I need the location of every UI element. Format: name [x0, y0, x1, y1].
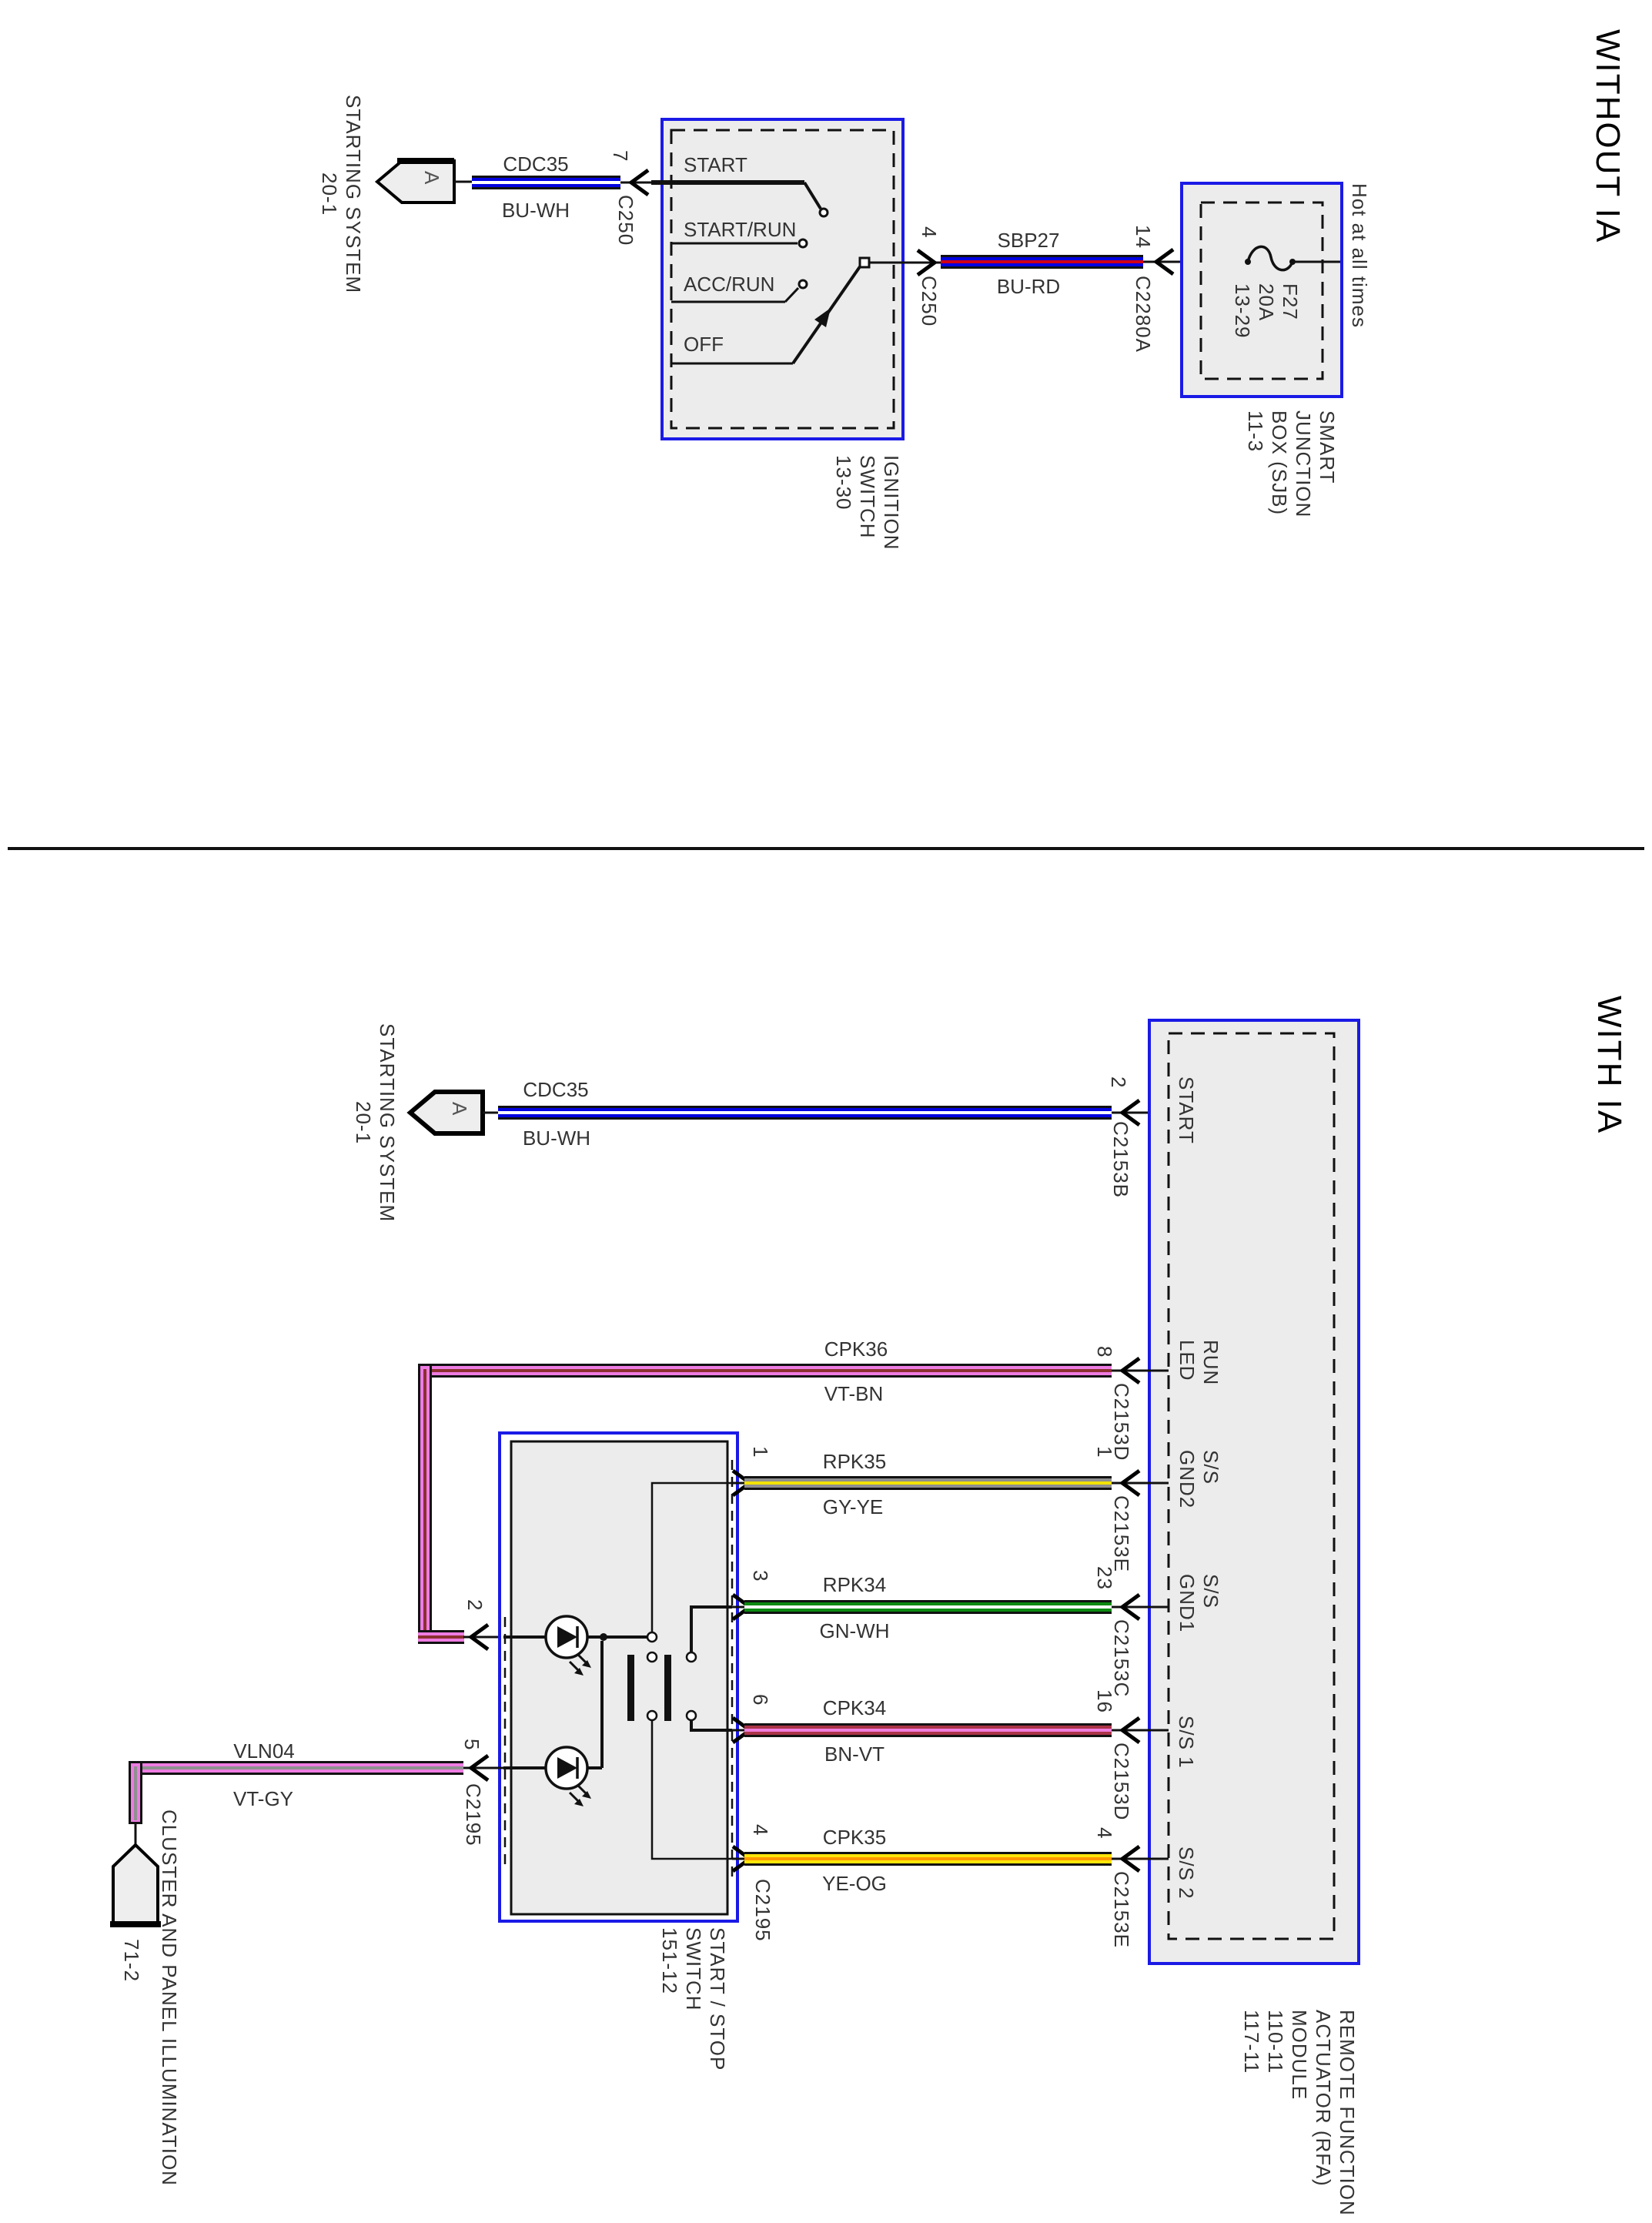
ignition-position-off: OFF [684, 333, 724, 356]
connector-c250-a: C250 [614, 195, 637, 246]
cluster-ref-number: 71-2 [119, 1939, 143, 1982]
module-pin-ss-gnd1: S/S GND1 [1175, 1574, 1222, 1632]
pin-16: 16 [1092, 1689, 1116, 1713]
wire-code-sbp27: SBP27 [998, 229, 1060, 252]
wire-code-rpk34: RPK34 [823, 1573, 886, 1596]
connector-c2153e-a: C2153E [1109, 1495, 1133, 1572]
ignition-position-start-run: START/RUN [684, 218, 796, 241]
wire-code-vln04: VLN04 [233, 1739, 295, 1763]
wire-color-cdc35-top: BU-WH [502, 199, 570, 222]
module-pin-start: START [1174, 1076, 1198, 1144]
pin-23: 23 [1092, 1566, 1116, 1590]
switch-pin-3: 3 [748, 1570, 772, 1582]
ignition-position-start: START [684, 153, 747, 176]
fuse-f27-label: F27 20A 13-29 [1230, 283, 1302, 339]
switch-pin-1: 1 [748, 1446, 772, 1458]
connector-c250-b: C250 [917, 276, 941, 326]
ignition-switch-label: IGNITION SWITCH 13-30 [831, 455, 903, 551]
switch-pin-2: 2 [463, 1599, 487, 1611]
pin-8: 8 [1092, 1346, 1116, 1358]
wire-rpk34 [744, 1600, 1112, 1614]
cluster-ref-arrow [110, 1824, 161, 1924]
starting-system-label-bottom: STARTING SYSTEM 20-1 [351, 1019, 399, 1227]
wire-color-cdc35-bottom: BU-WH [523, 1127, 590, 1150]
wire-cdc35-bottom [498, 1100, 1169, 1125]
connector-c2153d-b: C2153D [1109, 1743, 1133, 1820]
starting-system-label-top: STARTING SYSTEM 20-1 [317, 87, 365, 301]
pin-2-module: 2 [1106, 1076, 1130, 1088]
wire-cdc35-top [472, 170, 670, 195]
pin-1-module: 1 [1092, 1446, 1116, 1458]
start-stop-switch-box [500, 1433, 750, 1921]
wire-rpk35 [744, 1476, 1112, 1490]
ignition-position-acc-run: ACC/RUN [684, 273, 774, 296]
connector-c2195-right: C2195 [751, 1879, 774, 1942]
wiring-diagram-page: WITHOUT IA STARTING SYSTEM 20-1 A CDC35 … [0, 0, 1652, 2223]
wire-code-rpk35: RPK35 [823, 1450, 886, 1473]
wire-code-cdc35-top: CDC35 [503, 152, 568, 176]
connector-c2153e-b: C2153E [1109, 1871, 1133, 1948]
wire-code-cpk34: CPK34 [823, 1696, 886, 1719]
connector-c2195-left: C2195 [461, 1783, 485, 1846]
pin-14: 14 [1131, 225, 1155, 249]
wire-cpk34 [744, 1723, 1112, 1737]
pushbutton-bar [627, 1655, 634, 1721]
wire-cpk35 [744, 1852, 1112, 1866]
wire-code-cdc35-bottom: CDC35 [523, 1078, 588, 1101]
wire-color-cpk35: YE-OG [822, 1872, 887, 1895]
wire-color-cpk36: VT-BN [824, 1382, 884, 1405]
wire-color-vln04: VT-GY [233, 1787, 293, 1810]
section-title-without-ia: WITHOUT IA [1590, 29, 1625, 243]
switch-pin-6: 6 [748, 1694, 772, 1706]
wire-color-rpk34: GN-WH [820, 1619, 890, 1642]
pin-7: 7 [608, 150, 632, 162]
smart-junction-box-label: SMART JUNCTION BOX (SJB) 11-3 [1243, 410, 1339, 517]
ref-arrow-letter-top: A [420, 171, 443, 185]
switch-pin-5: 5 [460, 1739, 483, 1750]
wire-color-sbp27: BU-RD [997, 275, 1060, 298]
module-pin-ss2: S/S 2 [1174, 1846, 1198, 1900]
rfa-module-label: REMOTE FUNCTION ACTUATOR (RFA) MODULE 11… [1239, 2010, 1359, 2216]
wire-color-rpk35: GY-YE [823, 1495, 884, 1518]
cluster-illumination-label: CLUSTER AND PANEL ILLUMINATION [157, 1810, 181, 2186]
wire-code-cpk36: CPK36 [824, 1337, 888, 1361]
module-pin-ss1: S/S 1 [1174, 1716, 1198, 1769]
section-title-with-ia: WITH IA [1591, 996, 1627, 1134]
wire-vln04 [129, 1756, 503, 1824]
wire-code-cpk35: CPK35 [823, 1826, 886, 1849]
connector-c2153b: C2153B [1109, 1121, 1132, 1198]
pin-4-module: 4 [1092, 1827, 1116, 1839]
start-stop-switch-label: START / STOP SWITCH 151-12 [657, 1927, 729, 2071]
module-pin-run-led: RUN LED [1175, 1340, 1222, 1385]
wire-color-cpk34: BN-VT [824, 1743, 885, 1766]
switch-pin-4: 4 [748, 1824, 772, 1836]
module-pin-ss-gnd2: S/S GND2 [1175, 1450, 1222, 1508]
ref-arrow-letter-bottom: A [447, 1102, 471, 1116]
connector-c2153c: C2153C [1109, 1619, 1133, 1697]
hot-at-all-times-label: Hot at all times [1347, 183, 1371, 328]
connector-c2280a: C2280A [1131, 276, 1155, 353]
pushbutton-bar [664, 1655, 671, 1721]
pin-4: 4 [917, 226, 941, 238]
